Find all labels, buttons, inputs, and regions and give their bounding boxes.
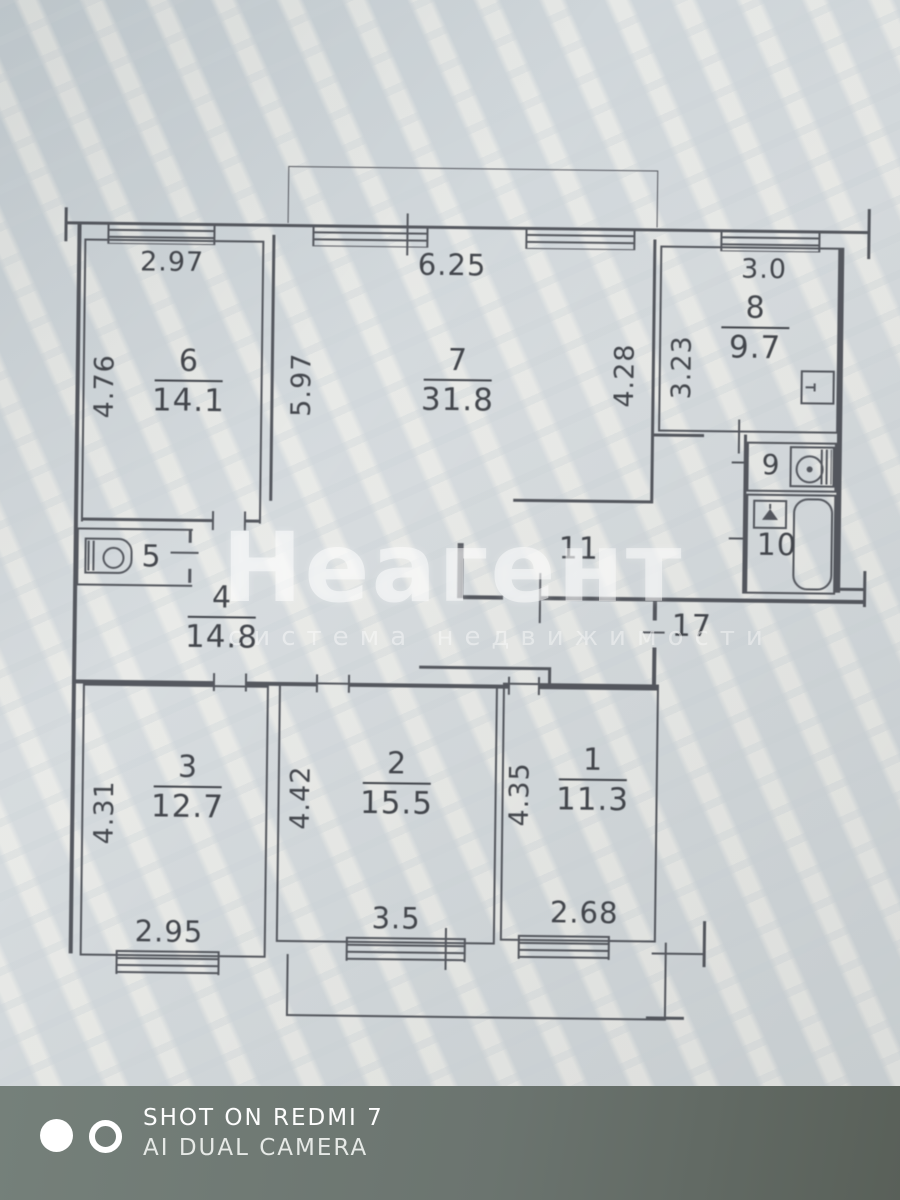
table-surface — [0, 1086, 900, 1200]
camera-ring-icon — [89, 1120, 122, 1153]
camera-watermark-line2: AI DUAL CAMERA — [143, 1135, 368, 1161]
photo-shading — [0, 0, 900, 1200]
photo-of-floor-plan: 2.97 6.25 3.0 4.76 5.97 4.28 3.23 4.31 4… — [0, 0, 900, 1200]
camera-watermark-line1: SHOT ON REDMI 7 — [143, 1105, 384, 1131]
camera-dot-icon — [40, 1119, 73, 1152]
